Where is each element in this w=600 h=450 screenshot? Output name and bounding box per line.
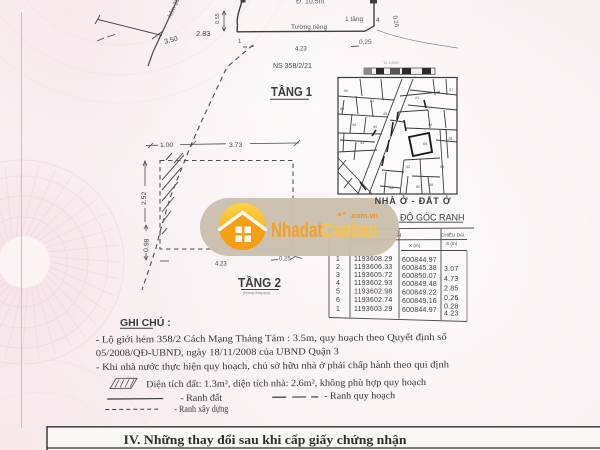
svg-text:- Ranh đất: - Ranh đất <box>180 393 222 404</box>
svg-text:NHÀ Ở - ĐẤT Ở: NHÀ Ở - ĐẤT Ở <box>375 195 452 206</box>
svg-text:1: 1 <box>238 39 242 45</box>
svg-text:2.52: 2.52 <box>141 192 148 205</box>
svg-text:6: 6 <box>336 297 340 304</box>
svg-text:30: 30 <box>428 123 432 127</box>
svg-text:CHIỀU DÀI: CHIỀU DÀI <box>441 232 464 238</box>
svg-text:IV. Những thay đổi sau khi cấp: IV. Những thay đổi sau khi cấp giấy chứn… <box>124 432 408 447</box>
svg-text:62: 62 <box>416 185 420 189</box>
svg-text:3.50: 3.50 <box>164 35 179 46</box>
svg-text:GHI CHÚ :: GHI CHÚ : <box>120 316 171 329</box>
svg-text:49: 49 <box>373 125 377 129</box>
svg-text:600849.48: 600849.48 <box>402 281 437 288</box>
svg-text:5: 5 <box>336 289 340 296</box>
svg-text:4.23: 4.23 <box>444 311 458 318</box>
svg-text:600849.16: 600849.16 <box>402 298 437 305</box>
svg-text:37: 37 <box>449 88 453 92</box>
svg-text:2: 2 <box>336 264 340 271</box>
svg-text:2.83: 2.83 <box>196 29 211 38</box>
svg-text:83: 83 <box>340 107 344 111</box>
svg-text:3.07: 3.07 <box>444 266 458 273</box>
svg-text:64: 64 <box>423 142 427 146</box>
svg-text:0.28: 0.28 <box>444 304 458 311</box>
svg-text:- Ranh quy hoạch: - Ranh quy hoạch <box>324 390 395 402</box>
svg-text:X (m): X (m) <box>409 243 421 248</box>
svg-text:Tường riêng: Tường riêng <box>291 24 327 31</box>
svg-text:TẦNG 2: TẦNG 2 <box>238 275 281 290</box>
svg-text:1193608.29: 1193608.29 <box>354 256 392 263</box>
svg-text:45: 45 <box>383 112 387 116</box>
svg-text:1 tầng: 1 tầng <box>345 14 363 23</box>
svg-text:- Lộ giới hẻm 358/2 Cách Mạng: - Lộ giới hẻm 358/2 Cách Mạng Tháng Tám … <box>96 332 447 346</box>
svg-text:48: 48 <box>389 186 393 190</box>
svg-text:1.00: 1.00 <box>160 142 173 149</box>
svg-text:05/2008/QĐ-UBND, ngày 18/11/20: 05/2008/QĐ-UBND, ngày 18/11/2008 của UBN… <box>96 346 339 359</box>
svg-text:ĐỘ GÓC RANH: ĐỘ GÓC RANH <box>400 213 465 223</box>
svg-text:40: 40 <box>352 123 356 127</box>
svg-text:3: 3 <box>336 272 340 279</box>
svg-text:28: 28 <box>448 137 452 141</box>
svg-text:600850.07: 600850.07 <box>402 273 437 280</box>
svg-text:(không đúng quy): (không đúng quy) <box>243 291 270 295</box>
svg-text:hẻm 358: hẻm 358 <box>167 0 183 19</box>
svg-text:42: 42 <box>406 165 410 169</box>
svg-text:66: 66 <box>429 183 433 187</box>
svg-text:4: 4 <box>376 17 380 24</box>
svg-text:TL 1/500: TL 1/500 <box>383 60 399 65</box>
svg-text:1193602.98: 1193602.98 <box>354 289 392 296</box>
svg-text:90: 90 <box>344 89 348 93</box>
svg-text:- Ranh xây dựng: - Ranh xây dựng <box>174 404 228 415</box>
svg-text:41: 41 <box>370 99 374 103</box>
svg-text:600849.22: 600849.22 <box>402 290 437 297</box>
svg-text:1: 1 <box>336 256 340 263</box>
svg-text:1: 1 <box>336 306 340 313</box>
svg-text:2.85: 2.85 <box>444 286 458 293</box>
svg-text:4.23: 4.23 <box>215 262 227 268</box>
svg-text:600844.97: 600844.97 <box>402 257 437 264</box>
svg-text:4.73: 4.73 <box>444 276 458 283</box>
svg-text:65: 65 <box>440 165 444 169</box>
svg-text:- Khi nhà nước thực hiện quy h: - Khi nhà nước thực hiện quy hoạch, chủ … <box>96 359 449 373</box>
svg-text:1193603.29: 1193603.29 <box>354 306 392 313</box>
svg-text:4.23: 4.23 <box>295 47 307 53</box>
svg-text:Diện tích đất: 1.3m², diện tíc: Diện tích đất: 1.3m², diện tích nhà: 2.6… <box>146 377 426 390</box>
svg-text:0.26: 0.26 <box>444 295 458 302</box>
svg-text:0,25: 0,25 <box>359 39 372 46</box>
svg-text:S (m): S (m) <box>446 241 458 246</box>
svg-text:1193606.33: 1193606.33 <box>354 264 392 271</box>
svg-text:1193602.93: 1193602.93 <box>354 280 392 287</box>
svg-text:0.98: 0.98 <box>143 238 151 252</box>
svg-text:TẦNG 1: TẦNG 1 <box>271 84 312 99</box>
svg-text:0.55: 0.55 <box>215 13 221 24</box>
svg-text:.com.vn: .com.vn <box>350 211 379 220</box>
svg-text:3.73: 3.73 <box>229 142 242 149</box>
svg-text:600844.97: 600844.97 <box>402 307 437 314</box>
svg-text:0.25: 0.25 <box>279 257 291 263</box>
svg-text:4: 4 <box>336 280 340 287</box>
svg-text:NS 358/2/21: NS 358/2/21 <box>273 63 312 70</box>
svg-text:44: 44 <box>360 141 364 145</box>
svg-text:0.26: 0.26 <box>391 15 399 28</box>
svg-text:NhadatCanban: NhadatCanban <box>271 219 378 242</box>
svg-text:1193605.72: 1193605.72 <box>354 272 392 279</box>
svg-text:1193602.74: 1193602.74 <box>354 297 392 304</box>
svg-text:21: 21 <box>415 96 419 100</box>
svg-text:Đ. 10,5m: Đ. 10,5m <box>296 0 325 6</box>
svg-text:600845.38: 600845.38 <box>402 265 437 272</box>
